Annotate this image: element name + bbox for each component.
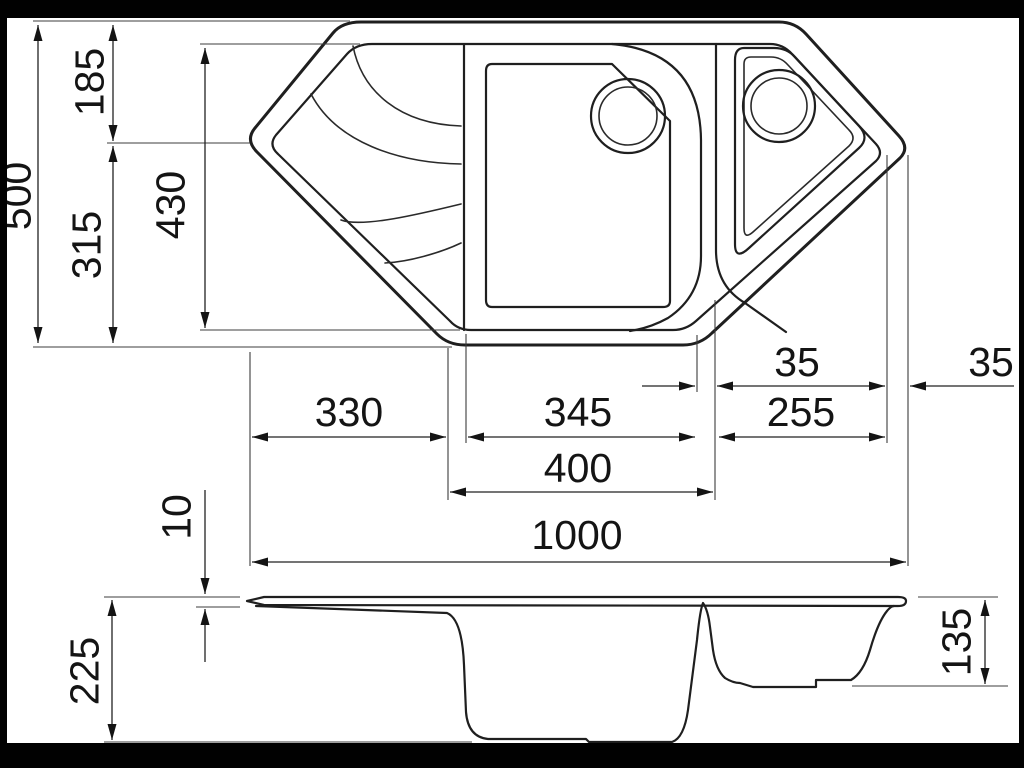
dim-label-inner-depth: 430 xyxy=(147,171,193,239)
drainer-groove xyxy=(341,204,461,222)
frame-right-bar xyxy=(1019,0,1024,768)
frame-left-bar xyxy=(0,0,7,768)
drainer-groove xyxy=(353,46,461,126)
dim-label-bowl-span: 400 xyxy=(544,445,612,491)
main-bowl-drain-icon xyxy=(591,79,665,153)
sink-inner-rim xyxy=(272,44,880,330)
small-bowl-inner-rim xyxy=(744,57,853,235)
section-bowl-profile xyxy=(256,603,894,742)
section-view xyxy=(247,597,906,742)
drawing-canvas: 330 345 255 35 35 400 1000 500 185 315 4… xyxy=(0,0,1024,768)
dim-label-front-depth: 315 xyxy=(63,211,109,279)
drainer-groove xyxy=(311,94,461,164)
dim-label-divider-wall-width: 35 xyxy=(774,339,820,385)
dimension-lines xyxy=(38,25,1014,740)
main-bowl-opening xyxy=(486,64,670,307)
small-bowl-drain-inner-ring xyxy=(751,78,807,134)
dim-label-corner-rim-width: 35 xyxy=(968,339,1014,385)
dim-label-drainer-width: 330 xyxy=(315,389,383,435)
dim-label-rim-thickness: 10 xyxy=(153,494,199,540)
drainer-groove xyxy=(385,243,461,263)
letterbox-frame xyxy=(0,0,1024,768)
frame-top-bar xyxy=(0,0,1024,18)
sink-technical-drawing: 330 345 255 35 35 400 1000 500 185 315 4… xyxy=(0,0,1024,768)
small-bowl-region-edge xyxy=(716,44,786,332)
small-bowl-drain-icon xyxy=(743,70,815,142)
main-bowl-drain-inner-ring xyxy=(599,87,657,145)
dim-label-overall-height: 225 xyxy=(61,637,107,705)
dim-label-small-bowl-depth: 135 xyxy=(933,608,979,676)
plan-view xyxy=(250,22,904,345)
dim-label-rear-depth: 185 xyxy=(66,48,112,116)
section-rim-slab xyxy=(247,597,906,606)
dim-label-main-bowl-width: 345 xyxy=(544,389,612,435)
frame-bottom-bar xyxy=(0,743,1024,768)
dim-label-overall-width: 1000 xyxy=(531,512,622,558)
dim-label-small-bowl-width: 255 xyxy=(767,389,835,435)
